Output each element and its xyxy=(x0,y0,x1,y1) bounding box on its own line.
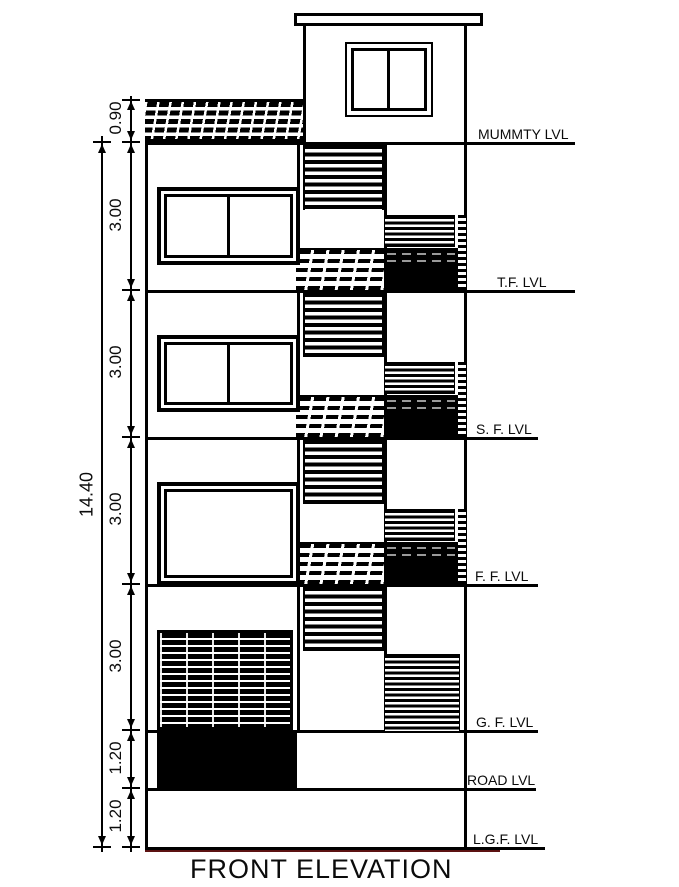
dim-tick xyxy=(122,583,140,585)
dim-arrow xyxy=(127,836,135,845)
label-road-lvl: ROAD LVL xyxy=(467,772,535,788)
dim-floor-height-3: 3.00 xyxy=(106,479,126,539)
railing-hatch xyxy=(303,145,384,210)
dim-floor-height-2: 3.00 xyxy=(106,332,126,392)
dim-arrow xyxy=(127,426,135,435)
louver-panel xyxy=(384,215,455,247)
floor1-window xyxy=(157,187,300,265)
dim-arrow xyxy=(127,292,135,301)
railing-hatch xyxy=(303,293,384,357)
label-tf-lvl: T.F. LVL xyxy=(497,274,547,290)
sunshade-hatch xyxy=(296,395,384,437)
dim-plinth-height-2: 1.20 xyxy=(106,786,126,846)
spandrel-dash xyxy=(387,547,455,549)
spandrel-dash xyxy=(387,260,455,262)
spandrel-panel xyxy=(384,542,458,584)
railing-hatch xyxy=(303,587,384,651)
mumty-window xyxy=(345,42,433,117)
dim-arrow xyxy=(127,586,135,595)
dim-arrow xyxy=(127,573,135,582)
dim-tick xyxy=(93,846,111,848)
spandrel-panel xyxy=(384,248,458,290)
dim-arrow xyxy=(127,144,135,153)
dim-floor-height-1: 3.00 xyxy=(106,185,126,245)
label-gf-lvl: G. F. LVL xyxy=(476,714,533,730)
floor1-window-mullion xyxy=(227,194,230,258)
brick-infill-panel xyxy=(157,630,293,730)
dim-arrow xyxy=(127,777,135,786)
spandrel-panel xyxy=(384,395,458,437)
floor3-window-inner-frame xyxy=(164,489,293,578)
wall-edge-hatch xyxy=(458,215,466,290)
wall-edge-hatch xyxy=(458,509,466,584)
dim-tick xyxy=(122,436,140,438)
dim-arrow xyxy=(127,279,135,288)
mumty-roof-slab xyxy=(294,13,483,26)
label-mummty-lvl: MUMMTY LVL xyxy=(478,126,569,142)
sunshade-hatch xyxy=(296,248,384,290)
dim-floor-height-4: 3.00 xyxy=(106,626,126,686)
left-wall-line xyxy=(145,99,148,849)
mumty-left-wall-line xyxy=(303,24,306,142)
drawing-title: FRONT ELEVATION xyxy=(184,854,459,887)
label-sf-lvl: S. F. LVL xyxy=(476,421,532,437)
dim-arrow xyxy=(127,732,135,741)
dim-arrow xyxy=(127,790,135,799)
dim-tick xyxy=(122,289,140,291)
dim-arrow xyxy=(98,144,106,153)
dim-arrow xyxy=(127,439,135,448)
parapet-hatch-band xyxy=(145,99,303,142)
elevation-drawing-sheet: 0.90 3.00 3.00 3.00 3.00 1.20 1.20 14.40… xyxy=(0,0,679,887)
mumty-window-mullion xyxy=(387,48,390,111)
label-ff-lvl: F. F. LVL xyxy=(475,568,528,584)
dim-total-height: 14.40 xyxy=(77,460,98,530)
spandrel-dash xyxy=(387,407,455,409)
louver-panel-tall xyxy=(384,654,460,732)
wall-edge-hatch xyxy=(458,362,466,437)
louver-panel xyxy=(384,362,455,394)
label-lgf-lvl: L.G.F. LVL xyxy=(473,831,538,847)
dim-tick xyxy=(122,846,140,848)
dim-parapet-height: 0.90 xyxy=(106,88,126,148)
railing-hatch xyxy=(303,440,384,504)
spandrel-dash xyxy=(387,554,455,556)
ground-red-line xyxy=(145,850,500,852)
plinth-black-block xyxy=(157,730,297,788)
road-level-line xyxy=(145,788,536,791)
spandrel-dash xyxy=(387,400,455,402)
floor3-window xyxy=(157,482,300,585)
dim-arrow xyxy=(127,101,135,110)
sunshade-hatch xyxy=(296,542,384,584)
dim-arrow xyxy=(98,836,106,845)
spandrel-dash xyxy=(387,253,455,255)
dim-arrow xyxy=(127,131,135,140)
floor2-window-mullion xyxy=(227,342,230,405)
louver-panel xyxy=(384,509,455,541)
total-dim-line xyxy=(101,136,103,852)
dim-arrow xyxy=(127,719,135,728)
dim-plinth-height-1: 1.20 xyxy=(106,728,126,788)
floor2-window xyxy=(157,335,300,412)
